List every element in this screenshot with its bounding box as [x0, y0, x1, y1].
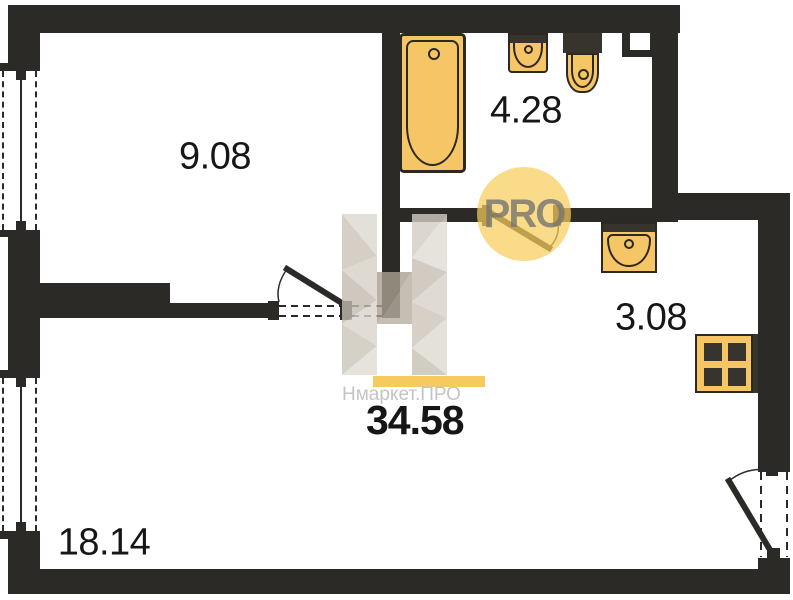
kitchen-area-label: 3.08	[615, 297, 687, 340]
interior-door	[278, 269, 382, 316]
pro-badge: PRO	[477, 167, 571, 261]
bathroom-area-label: 4.28	[490, 90, 562, 133]
interior-door-arc	[278, 269, 287, 302]
interior-door-leaf	[287, 269, 345, 305]
living-area-label: 18.14	[58, 522, 151, 565]
pro-badge-text: PRO	[484, 192, 565, 237]
balcony-door	[729, 469, 787, 557]
room-area-label: 9.08	[179, 136, 251, 179]
balcony-door-arc	[729, 469, 768, 481]
floor-plan: 9.08 4.28 3.08 18.14 Нмаркет.ПРО 34.58 P	[0, 0, 793, 600]
total-area-label: 34.58	[366, 397, 464, 444]
balcony-door-leaf	[729, 481, 773, 555]
